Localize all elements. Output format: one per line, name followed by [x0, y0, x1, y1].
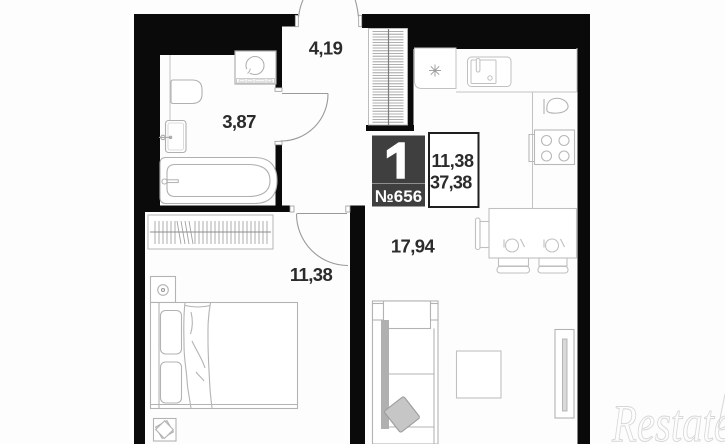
svg-text:11,38: 11,38 — [290, 264, 333, 285]
svg-text:17,94: 17,94 — [391, 236, 436, 257]
svg-text:Restate: Restate — [611, 395, 725, 444]
svg-text:11,38: 11,38 — [432, 151, 474, 171]
svg-text:4,19: 4,19 — [309, 38, 343, 59]
svg-text:37,38: 37,38 — [430, 173, 472, 193]
svg-text:№656: №656 — [375, 187, 422, 206]
svg-text:3,87: 3,87 — [222, 111, 256, 132]
